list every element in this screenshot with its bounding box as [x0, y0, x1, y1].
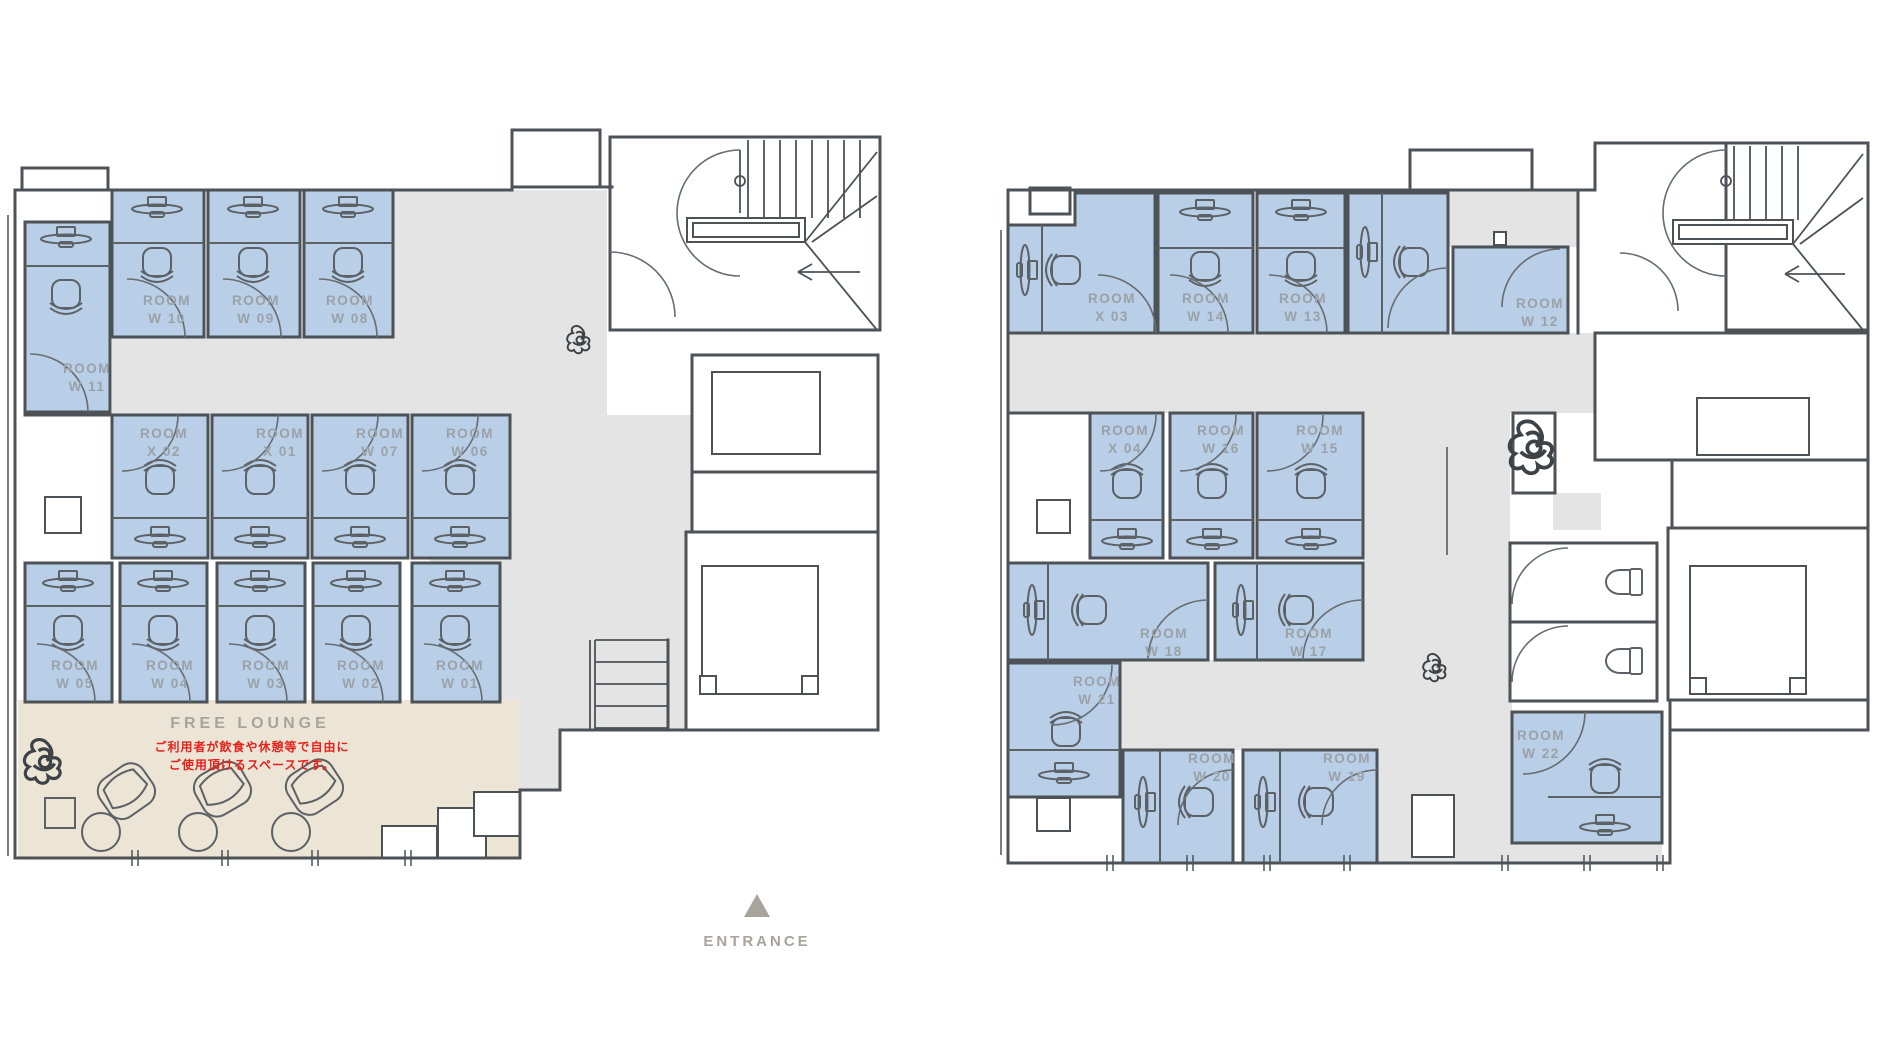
- room-w06-title: ROOM: [446, 426, 494, 441]
- room-w08-number: W 08: [331, 311, 369, 326]
- room-w18-number: W 18: [1145, 644, 1183, 659]
- floor-plan-image: FREE LOUNGE ご利用者が飲食や休憩等で自由に ご使用頂けるスペースです…: [0, 0, 1890, 1060]
- entrance-label: ENTRANCE: [703, 933, 810, 950]
- room-w05-number: W 05: [56, 676, 94, 691]
- wall-bump: [1410, 150, 1532, 190]
- room-w21-title: ROOM: [1073, 674, 1121, 689]
- counter: [382, 826, 437, 858]
- room-w10-title: ROOM: [143, 293, 191, 308]
- room-x04-title: ROOM: [1101, 423, 1149, 438]
- room-w19-title: ROOM: [1323, 751, 1371, 766]
- entrance-marker: ENTRANCE: [703, 894, 810, 950]
- room-w05-title: ROOM: [51, 658, 99, 673]
- room-w22-title: ROOM: [1517, 728, 1565, 743]
- room-w22-number: W 22: [1522, 746, 1560, 761]
- room-w21-number: W 21: [1078, 692, 1116, 707]
- room-x03-number: X 03: [1095, 309, 1129, 324]
- shaft-box: [1037, 500, 1070, 533]
- shaft-box: [1037, 798, 1070, 831]
- room-x01-title: ROOM: [256, 426, 304, 441]
- room-w13-title: ROOM: [1279, 291, 1327, 306]
- room-w14-number: W 14: [1187, 309, 1225, 324]
- room-w01-title: ROOM: [436, 658, 484, 673]
- wall-bump: [22, 168, 108, 190]
- room-w04-number: W 04: [151, 676, 189, 691]
- room-w20-number: W 20: [1193, 769, 1231, 784]
- right-plan: ROOMX 03ROOMW 14ROOMW 13ROOMW 12ROOMX 04…: [1001, 143, 1868, 871]
- room-w04-title: ROOM: [146, 658, 194, 673]
- room-w16-title: ROOM: [1197, 423, 1245, 438]
- room-w17-number: W 17: [1290, 644, 1328, 659]
- room-x03-title: ROOM: [1088, 291, 1136, 306]
- room-w11-title: ROOM: [63, 361, 111, 376]
- lounge-note-line2: ご使用頂けるスペースです。: [169, 757, 335, 772]
- room-w10-number: W 10: [148, 311, 186, 326]
- room-w20-title: ROOM: [1188, 751, 1236, 766]
- wall-notch: [1030, 188, 1070, 214]
- room-w16-number: W 16: [1202, 441, 1240, 456]
- wall-bump: [512, 130, 600, 187]
- toilet-stall: [1510, 543, 1657, 622]
- room-w03-number: W 03: [247, 676, 285, 691]
- room-w03-title: ROOM: [242, 658, 290, 673]
- room-w17-title: ROOM: [1285, 626, 1333, 641]
- room-x04-number: X 04: [1108, 441, 1142, 456]
- room-w11-number: W 11: [69, 379, 106, 394]
- room-w12-number: W 12: [1521, 314, 1559, 329]
- room-w15-number: W 15: [1301, 441, 1339, 456]
- toilet-stall: [1510, 622, 1657, 701]
- room-w18-title: ROOM: [1140, 626, 1188, 641]
- room-w19-area: [1243, 750, 1377, 863]
- room-w02-title: ROOM: [337, 658, 385, 673]
- room-w09-number: W 09: [237, 311, 275, 326]
- room-w07-number: W 07: [361, 444, 399, 459]
- room-w19-number: W 19: [1328, 769, 1366, 784]
- counter: [1412, 795, 1454, 857]
- room-w01-number: W 01: [441, 676, 479, 691]
- floor-plan-page: FREE LOUNGE ご利用者が飲食や休憩等で自由に ご使用頂けるスペースです…: [0, 0, 1890, 1060]
- room-w09-title: ROOM: [232, 293, 280, 308]
- room-x02-number: X 02: [147, 444, 181, 459]
- left-plan: FREE LOUNGE ご利用者が飲食や休憩等で自由に ご使用頂けるスペースです…: [8, 130, 880, 866]
- room-w14-title: ROOM: [1182, 291, 1230, 306]
- room-w06-number: W 06: [451, 444, 489, 459]
- counter: [474, 792, 520, 836]
- shaft-box: [45, 497, 81, 533]
- lounge-note-line1: ご利用者が飲食や休憩等で自由に: [154, 739, 349, 754]
- room-w07-title: ROOM: [356, 426, 404, 441]
- room-w02-number: W 02: [342, 676, 380, 691]
- room-x02-title: ROOM: [140, 426, 188, 441]
- room-w15-title: ROOM: [1296, 423, 1344, 438]
- room-w08-title: ROOM: [326, 293, 374, 308]
- room-x01-number: X 01: [263, 444, 297, 459]
- room-w13-number: W 13: [1284, 309, 1322, 324]
- entrance-arrow-icon: [744, 894, 770, 917]
- lounge-title: FREE LOUNGE: [170, 715, 330, 732]
- room-w12-title: ROOM: [1516, 296, 1564, 311]
